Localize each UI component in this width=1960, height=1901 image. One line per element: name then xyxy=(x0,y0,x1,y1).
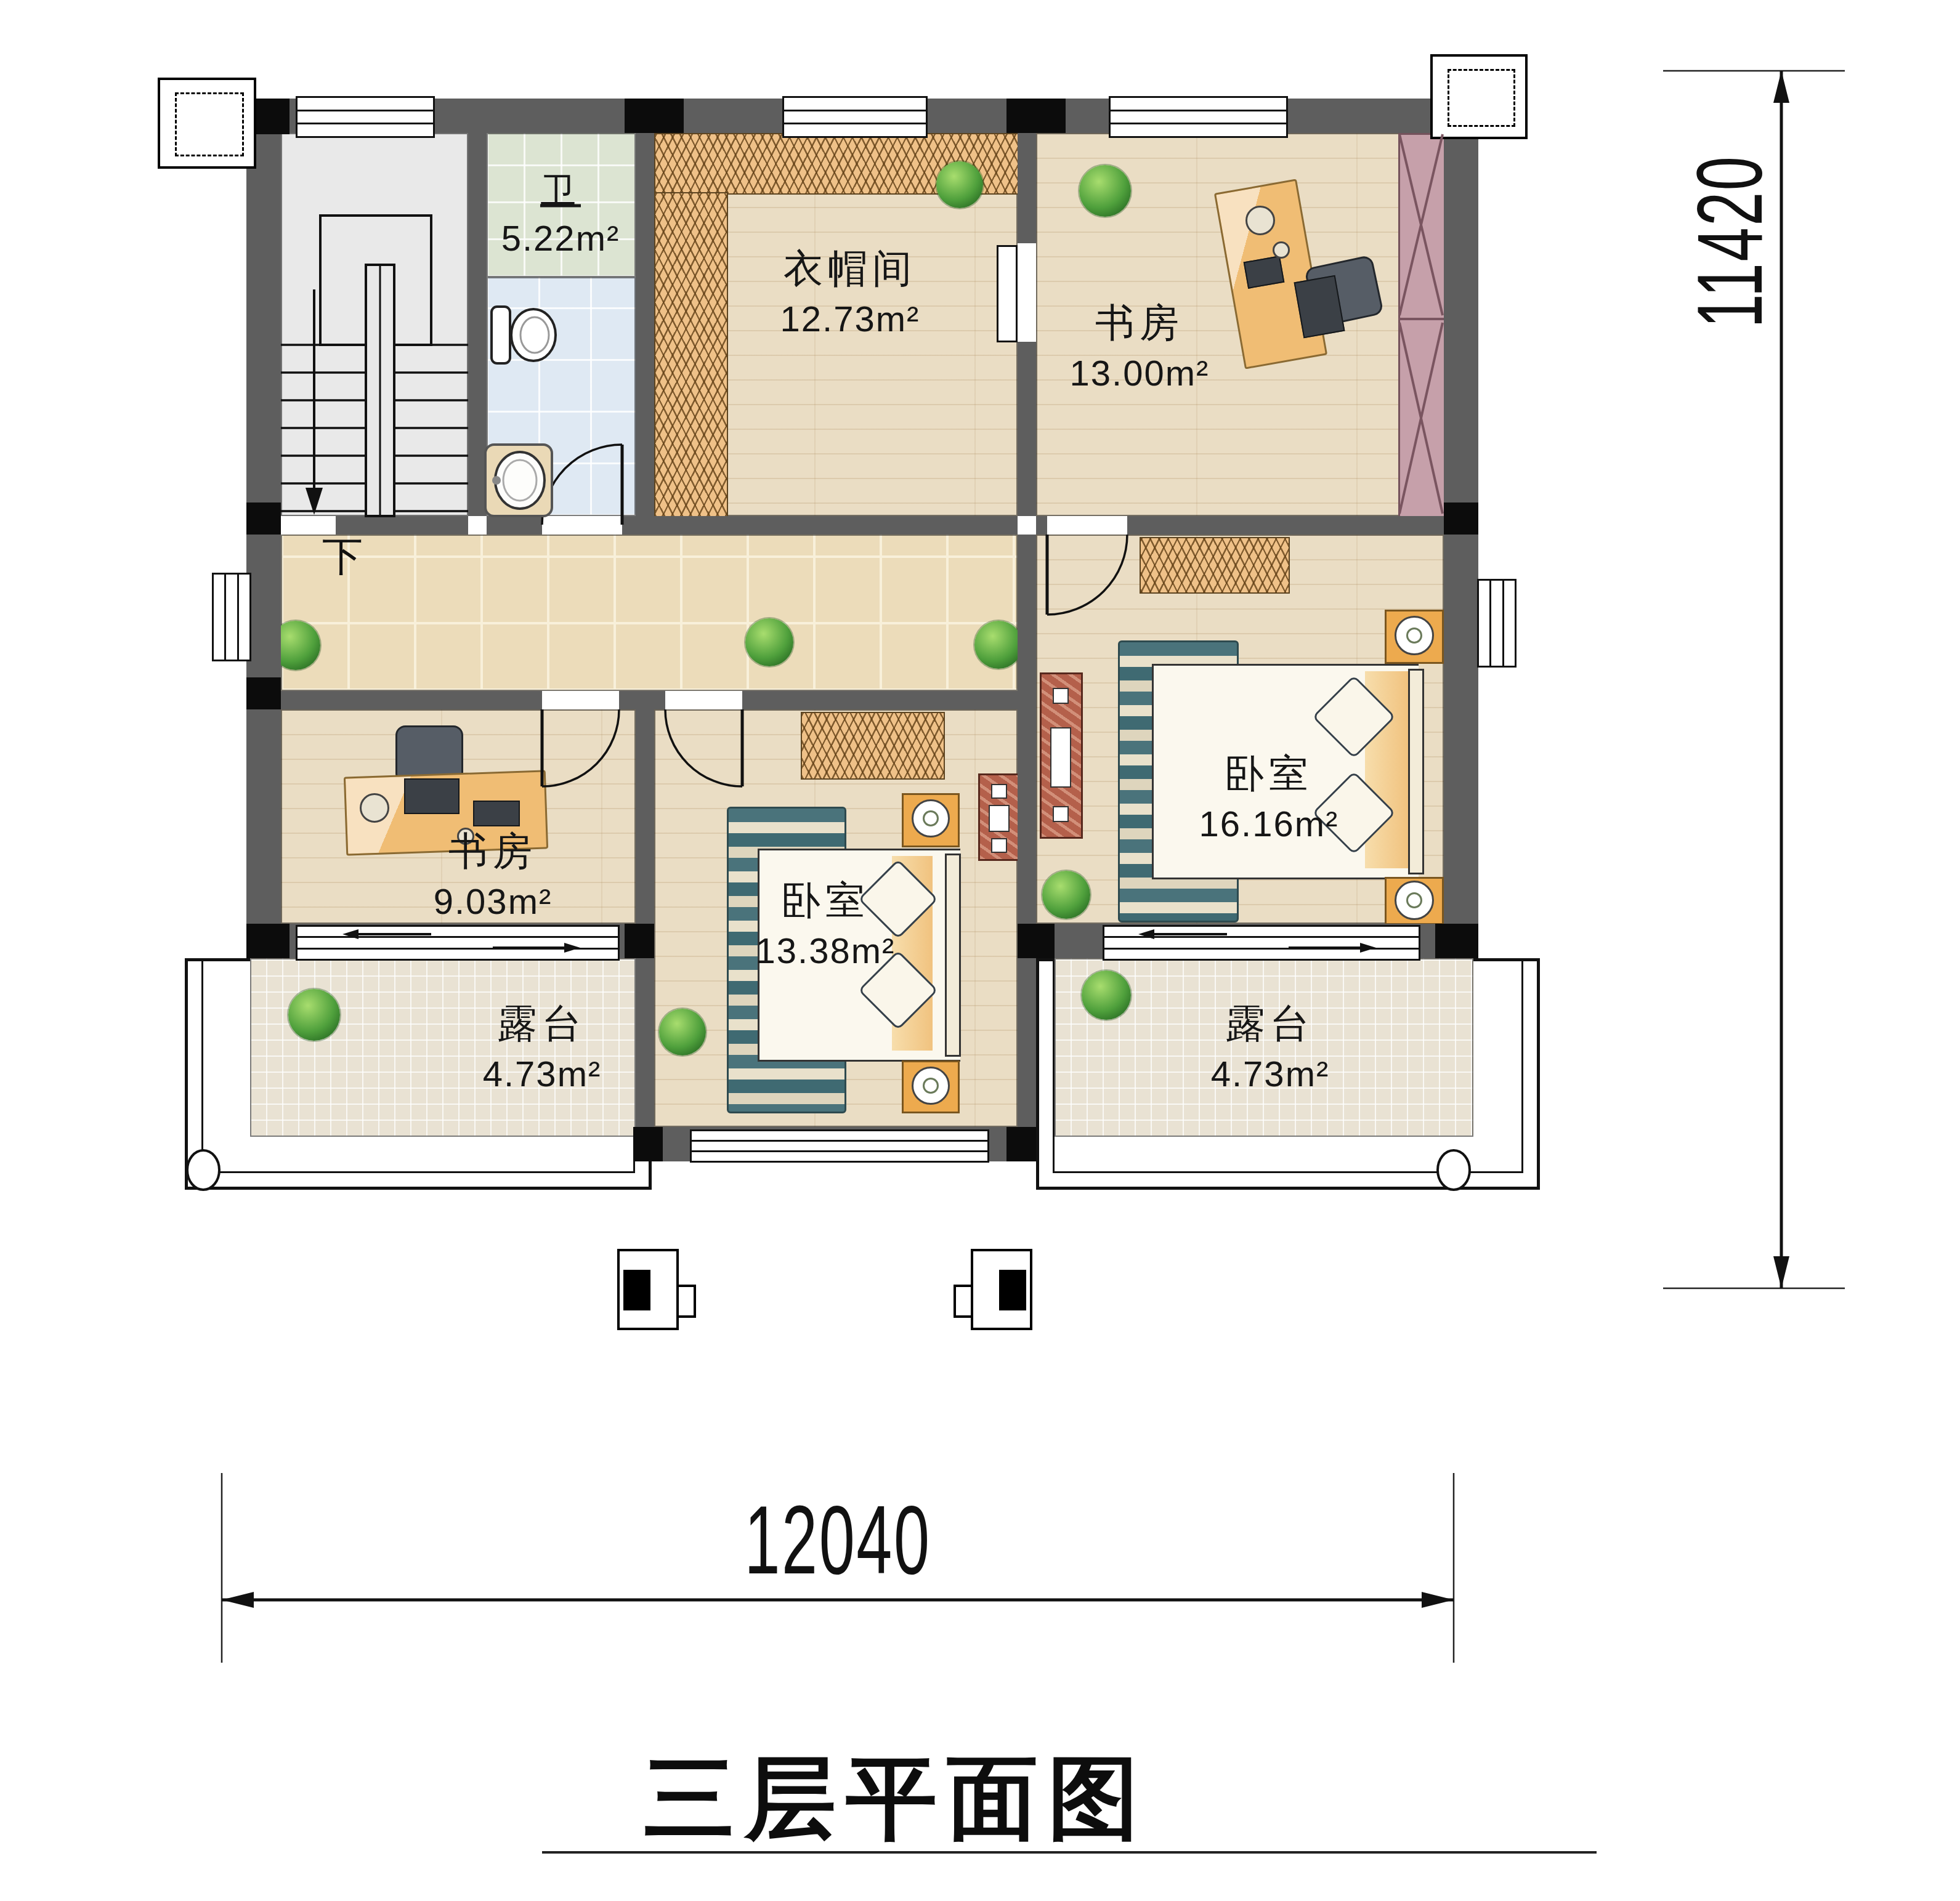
floor-plan-canvas: 卫 5.22m² 衣帽间 12.73m² 书房 13.00m² 卧室 16.16… xyxy=(0,0,1960,1901)
title-underline xyxy=(542,1851,1597,1854)
room-area: 5.22m² xyxy=(501,217,620,259)
pier-symbol-left xyxy=(617,1249,679,1330)
room-name: 露台 xyxy=(483,997,602,1051)
room-area: 4.73m² xyxy=(1211,1053,1330,1094)
room-name: 衣帽间 xyxy=(780,242,920,296)
room-name: 卧室 xyxy=(756,874,896,927)
dimension-height: 11420 xyxy=(1677,155,1783,328)
room-label-study-top: 书房 13.00m² xyxy=(1070,296,1210,394)
room-area: 9.03m² xyxy=(434,881,553,922)
room-label-bathroom: 卫 5.22m² xyxy=(501,167,620,259)
room-area: 13.38m² xyxy=(756,930,896,971)
room-area: 4.73m² xyxy=(483,1053,602,1094)
room-name: 卧室 xyxy=(1199,747,1339,801)
pier-symbol-left-tab xyxy=(676,1285,696,1318)
room-label-bedroom-right: 卧室 16.16m² xyxy=(1199,747,1339,844)
room-name: 书房 xyxy=(1070,296,1210,350)
room-area: 13.00m² xyxy=(1070,352,1210,394)
room-name: 露台 xyxy=(1211,997,1330,1051)
room-name: 卫 xyxy=(501,167,620,215)
room-name: 书房 xyxy=(434,825,553,878)
room-label-terrace-left: 露台 4.73m² xyxy=(483,997,602,1094)
linework-overlay xyxy=(0,0,1960,1901)
room-label-bedroom-middle: 卧室 13.38m² xyxy=(756,874,896,971)
room-label-cloakroom: 衣帽间 12.73m² xyxy=(780,242,920,339)
room-label-terrace-right: 露台 4.73m² xyxy=(1211,997,1330,1094)
room-area: 16.16m² xyxy=(1199,803,1339,844)
stair-down-label: 下 xyxy=(322,529,363,584)
room-label-study-left: 书房 9.03m² xyxy=(434,825,553,922)
room-area: 12.73m² xyxy=(780,298,920,339)
page-title: 三层平面图 xyxy=(644,1738,1149,1861)
pier-symbol-right xyxy=(971,1249,1032,1330)
dimension-width: 12040 xyxy=(744,1484,931,1596)
